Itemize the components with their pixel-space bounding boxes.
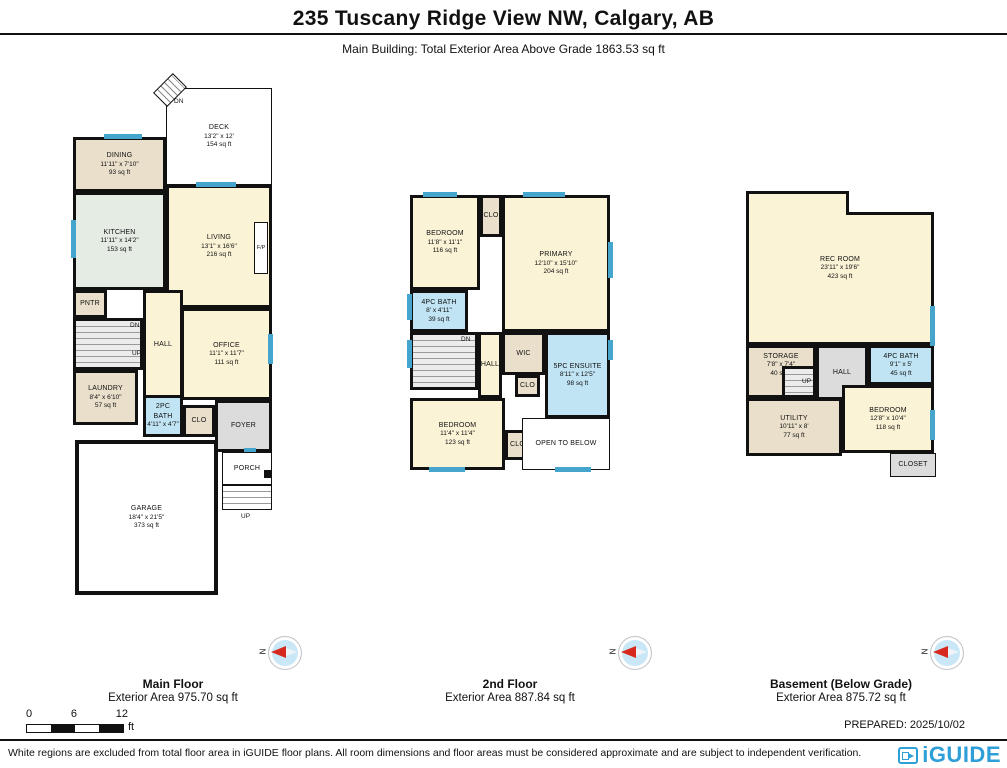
compass-tail-icon bbox=[286, 648, 297, 656]
porch-stairs bbox=[222, 485, 272, 510]
stairs-dn-label-2f: DN bbox=[461, 336, 470, 343]
window bbox=[71, 220, 76, 258]
disclaimer-text: White regions are excluded from total fl… bbox=[8, 747, 861, 759]
room-dining: DINING 11'11" x 7'10" 93 sq ft bbox=[73, 137, 166, 192]
room-kitchen: KITCHEN 11'11" x 14'2" 153 sq ft bbox=[73, 192, 166, 290]
window bbox=[423, 192, 457, 197]
compass-tail-icon bbox=[636, 648, 647, 656]
compass-second: N bbox=[610, 634, 654, 674]
room-hall-main: HALL bbox=[143, 290, 183, 400]
iguide-logo-text: iGUIDE bbox=[922, 742, 1001, 768]
room-pantry: PNTR bbox=[73, 290, 107, 318]
prepared-date: PREPARED: 2025/10/02 bbox=[844, 719, 965, 731]
room-utility: UTILITY 10'11" x 8' 77 sq ft bbox=[746, 398, 842, 456]
scale-bar-segments bbox=[26, 724, 124, 733]
page-title: 235 Tuscany Ridge View NW, Calgary, AB bbox=[0, 7, 1007, 31]
room-primary: PRIMARY 12'10" x 15'10" 204 sq ft bbox=[502, 195, 610, 332]
room-4pc-bath-basement: 4PC BATH 9'1" x 5' 45 sq ft bbox=[868, 345, 934, 385]
compass-tail-icon bbox=[948, 648, 959, 656]
window bbox=[407, 294, 412, 320]
room-laundry: LAUNDRY 8'4" x 6'10" 57 sq ft bbox=[73, 370, 138, 425]
compass-needle-icon bbox=[933, 646, 948, 658]
window bbox=[555, 467, 591, 472]
compass-needle-icon bbox=[271, 646, 286, 658]
room-2pc-bath: 2PC BATH 4'11" x 4'7" bbox=[143, 395, 183, 437]
compass-basement: N bbox=[922, 634, 966, 674]
compass-needle-icon bbox=[621, 646, 636, 658]
window bbox=[608, 242, 613, 278]
caption-second-floor: 2nd Floor Exterior Area 887.84 sq ft bbox=[400, 676, 620, 704]
compass-n-label: N bbox=[608, 649, 617, 655]
room-bedroom-2f-a: BEDROOM 11'8" x 11'1" 116 sq ft bbox=[410, 195, 480, 290]
window bbox=[429, 467, 465, 472]
compass-n-label: N bbox=[258, 649, 267, 655]
open-to-below: OPEN TO BELOW bbox=[522, 418, 610, 470]
room-bedroom-2f-b: BEDROOM 11'4" x 11'4" 123 sq ft bbox=[410, 398, 505, 470]
room-hall-2f: HALL bbox=[478, 332, 502, 398]
scale-bar: 0 6 12 ft bbox=[26, 708, 134, 733]
stairs-up-label: UP bbox=[132, 350, 141, 357]
room-closet-basement: CLOSET bbox=[890, 453, 936, 477]
compass-n-label: N bbox=[920, 649, 929, 655]
porch-post bbox=[264, 470, 272, 478]
room-closet-2f-top: CLO bbox=[480, 195, 502, 237]
room-wic: WIC bbox=[502, 332, 545, 375]
room-4pc-bath-2f: 4PC BATH 8' x 4'11" 39 sq ft bbox=[410, 290, 468, 332]
room-ensuite: 5PC ENSUITE 8'11" x 12'5" 98 sq ft bbox=[545, 332, 610, 418]
room-closet-main: CLO bbox=[183, 405, 215, 437]
room-closet-2f-mid: CLO bbox=[515, 375, 540, 397]
page-subtitle: Main Building: Total Exterior Area Above… bbox=[0, 42, 1007, 56]
room-bedroom-basement: BEDROOM 12'8" x 10'4" 118 sq ft bbox=[842, 385, 934, 453]
porch-up-label: UP bbox=[241, 513, 250, 520]
scale-ticks: 0 6 12 bbox=[26, 708, 128, 720]
second-floor-plan: BEDROOM 11'8" x 11'1" 116 sq ft CLO PRIM… bbox=[405, 190, 615, 475]
deck-dn-label: DN bbox=[174, 98, 183, 105]
header-divider bbox=[0, 33, 1007, 35]
stairs-dn-label: DN bbox=[130, 322, 139, 329]
main-floor-plan: DN DECK 13'2" x 12' 154 sq ft DINING 11'… bbox=[68, 82, 278, 597]
window bbox=[930, 306, 935, 346]
room-garage: GARAGE 18'4" x 21'5" 373 sq ft bbox=[75, 440, 218, 595]
caption-main-floor: Main Floor Exterior Area 975.70 sq ft bbox=[63, 676, 283, 704]
stairs-up-label-basement: UP bbox=[802, 378, 811, 385]
compass-main: N bbox=[260, 634, 304, 674]
basement-plan: REC ROOM 23'11" x 19'6" 423 sq ft STORAG… bbox=[742, 188, 940, 486]
window bbox=[104, 134, 142, 139]
caption-basement: Basement (Below Grade) Exterior Area 875… bbox=[731, 676, 951, 704]
iguide-logo: iGUIDE bbox=[898, 742, 1001, 768]
entry-door bbox=[244, 448, 256, 452]
footer-divider bbox=[0, 739, 1007, 741]
room-foyer: FOYER bbox=[215, 400, 272, 452]
window bbox=[930, 410, 935, 440]
window bbox=[268, 334, 273, 364]
scale-unit: ft bbox=[128, 721, 134, 733]
room-office: OFFICE 11'1" x 11'7" 111 sq ft bbox=[181, 308, 272, 400]
window bbox=[608, 340, 613, 360]
window bbox=[523, 192, 565, 197]
room-porch: PORCH bbox=[222, 452, 272, 485]
iguide-logo-icon bbox=[898, 747, 918, 764]
fireplace: F/P bbox=[254, 222, 268, 274]
window bbox=[407, 340, 412, 368]
window bbox=[196, 182, 236, 187]
rec-room-notch bbox=[846, 191, 934, 215]
